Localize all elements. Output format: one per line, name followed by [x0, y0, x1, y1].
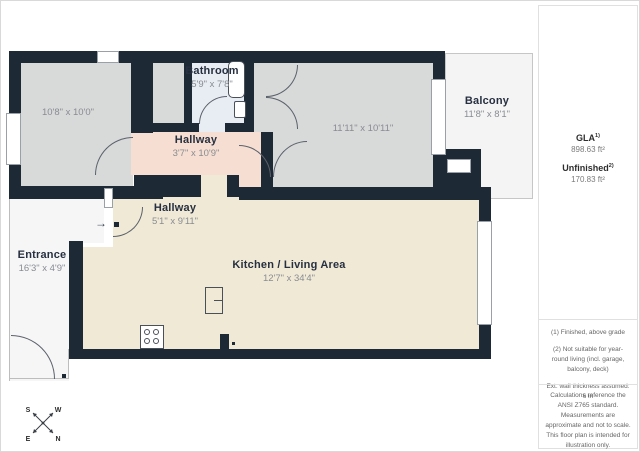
wall — [69, 349, 491, 359]
unfinished-value: 170.83 ft² — [539, 175, 637, 184]
stove-burner — [153, 338, 159, 344]
stove-burner — [153, 329, 159, 335]
window — [431, 79, 446, 155]
room-dims: 3'7" x 10'9" — [173, 148, 220, 160]
compass-e: E — [26, 436, 31, 443]
disclaimer-text: Calculations reference the ANSI Z765 sta… — [545, 391, 631, 451]
wall — [227, 175, 239, 197]
sidebar-divider — [539, 319, 637, 320]
entrance-upper-area — [9, 199, 104, 243]
room-label-bedroom: 10'8" x 10'0" — [42, 107, 94, 119]
bathroom-door-gap — [199, 123, 225, 132]
window — [6, 113, 21, 165]
wall — [134, 175, 201, 197]
area-stats: GLA1) 898.63 ft² Unfinished2) 170.83 ft² — [539, 133, 637, 193]
stove — [140, 325, 164, 349]
floorplan-page: → 10'8" x 10'0" Bathroom 5'9" x 7'8" 11'… — [0, 0, 640, 452]
hallway-door-gap — [201, 175, 227, 197]
stove-burner — [144, 338, 150, 344]
wall — [13, 51, 443, 63]
room-dims: 5'9" x 7'8" — [185, 79, 239, 91]
wall — [244, 51, 254, 132]
room-name: Entrance — [18, 249, 67, 263]
kitchen-counter-divider — [214, 300, 223, 301]
room-label-bathroom: Bathroom 5'9" x 7'8" — [185, 65, 239, 91]
room-label-hallway-lower: Hallway 5'1" x 9'11" — [152, 202, 198, 228]
room-label-kitchen: Kitchen / Living Area 12'7" x 34'4" — [232, 259, 345, 285]
room-closet — [153, 63, 184, 123]
wall — [131, 63, 153, 133]
room-dims: 11'11" x 10'11" — [333, 123, 394, 135]
room-label-balcony: Balcony 11'8" x 8'1" — [464, 95, 510, 121]
window — [477, 221, 492, 325]
wall — [69, 241, 83, 359]
room-dims: 12'7" x 34'4" — [232, 273, 345, 285]
unfinished-label: Unfinished2) — [539, 163, 637, 173]
room-name: Hallway — [152, 202, 198, 216]
gla-label: GLA1) — [539, 133, 637, 143]
footnote-2: (2) Not suitable for year-round living (… — [545, 345, 631, 375]
room-label-hallway-upper: Hallway 3'7" x 10'9" — [173, 134, 220, 160]
entry-marker-dot — [114, 222, 119, 227]
wall — [433, 149, 481, 199]
unfinished-footnote-ref: 2) — [609, 163, 614, 169]
disclaimer-section: Calculations reference the ANSI Z765 sta… — [545, 391, 631, 452]
room-dims: 11'8" x 8'1" — [464, 109, 510, 121]
room-dims: 5'1" x 9'11" — [152, 216, 198, 228]
entrance-boundary-line — [68, 349, 69, 379]
compass-icon: S W E N — [17, 395, 67, 445]
room-name: Bathroom — [185, 65, 239, 79]
compass-w: W — [55, 407, 62, 414]
info-sidebar: GLA1) 898.63 ft² Unfinished2) 170.83 ft²… — [538, 5, 638, 449]
window — [97, 51, 119, 63]
room-dims: 10'8" x 10'0" — [42, 107, 94, 119]
room-name: Balcony — [464, 95, 510, 109]
wall-tick — [62, 374, 66, 378]
room-name: Kitchen / Living Area — [232, 259, 345, 273]
room-dims: 16'3" x 4'9" — [18, 263, 67, 275]
gla-value: 898.63 ft² — [539, 145, 637, 154]
room-label-entrance: Entrance 16'3" x 4'9" — [18, 249, 67, 275]
window — [104, 188, 113, 208]
wall-tick — [232, 342, 235, 345]
entrance-boundary-line — [9, 199, 10, 381]
compass-n: N — [55, 436, 60, 443]
window — [447, 159, 471, 173]
room-name: Hallway — [173, 134, 220, 148]
stove-burner — [144, 329, 150, 335]
wall-stub — [220, 334, 229, 349]
footnote-1: (1) Finished, above grade — [545, 328, 631, 338]
kitchen-upper-area — [239, 200, 479, 247]
gla-footnote-ref: 1) — [595, 133, 600, 139]
room-label-bedroom2: 11'11" x 10'11" — [333, 123, 394, 135]
sink — [234, 101, 246, 118]
sidebar-divider — [539, 384, 637, 385]
compass-s: S — [26, 407, 31, 414]
entry-arrow-icon: → — [95, 217, 107, 229]
